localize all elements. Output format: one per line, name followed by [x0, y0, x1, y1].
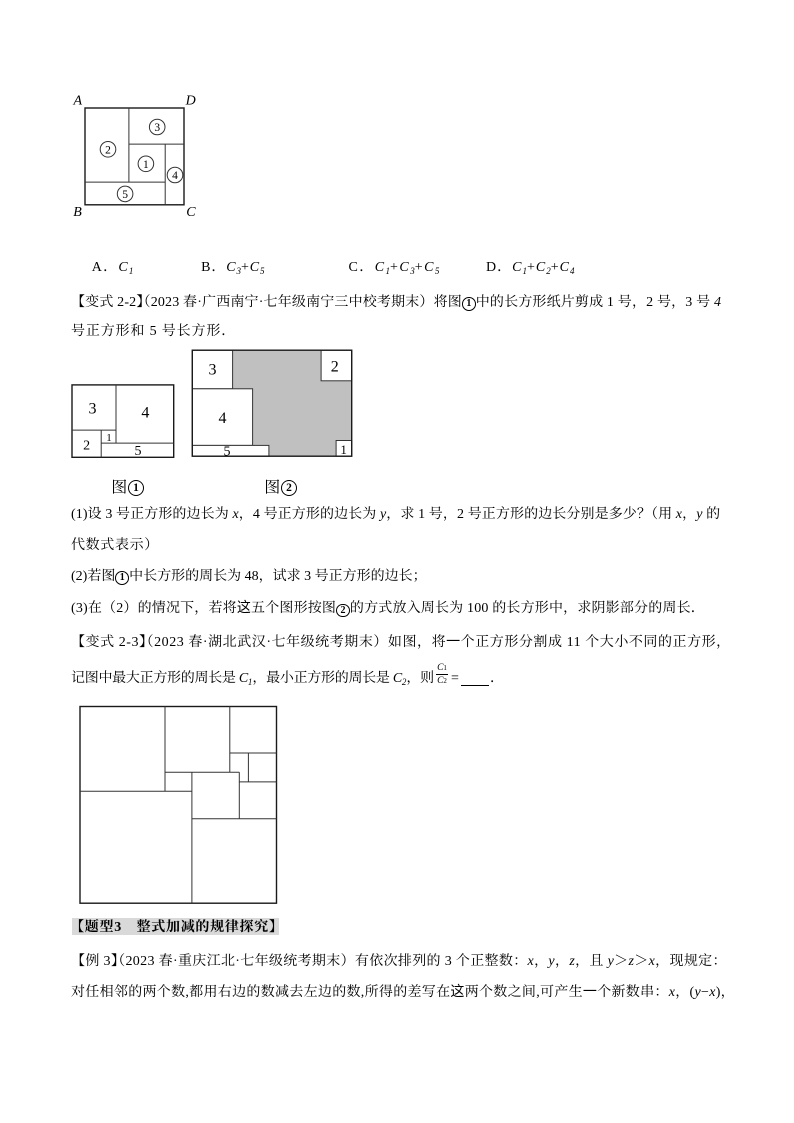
svg-text:1: 1: [106, 432, 112, 444]
svg-text:5: 5: [135, 444, 142, 459]
svg-text:D: D: [185, 93, 196, 108]
svg-text:3: 3: [89, 401, 97, 418]
svg-text:4: 4: [219, 410, 227, 427]
svg-text:1: 1: [340, 442, 347, 457]
svg-text:A: A: [73, 93, 83, 108]
svg-text:1: 1: [143, 159, 149, 171]
svg-text:2: 2: [105, 144, 111, 156]
svg-text:4: 4: [141, 405, 149, 422]
svg-text:2: 2: [331, 359, 339, 376]
svg-text:3: 3: [209, 362, 217, 379]
svg-text:4: 4: [172, 170, 178, 182]
svg-text:C: C: [186, 205, 196, 220]
svg-text:3: 3: [154, 122, 160, 134]
svg-text:B: B: [73, 205, 82, 220]
svg-text:5: 5: [224, 445, 231, 460]
svg-text:5: 5: [122, 189, 128, 201]
svg-text:2: 2: [83, 439, 90, 454]
